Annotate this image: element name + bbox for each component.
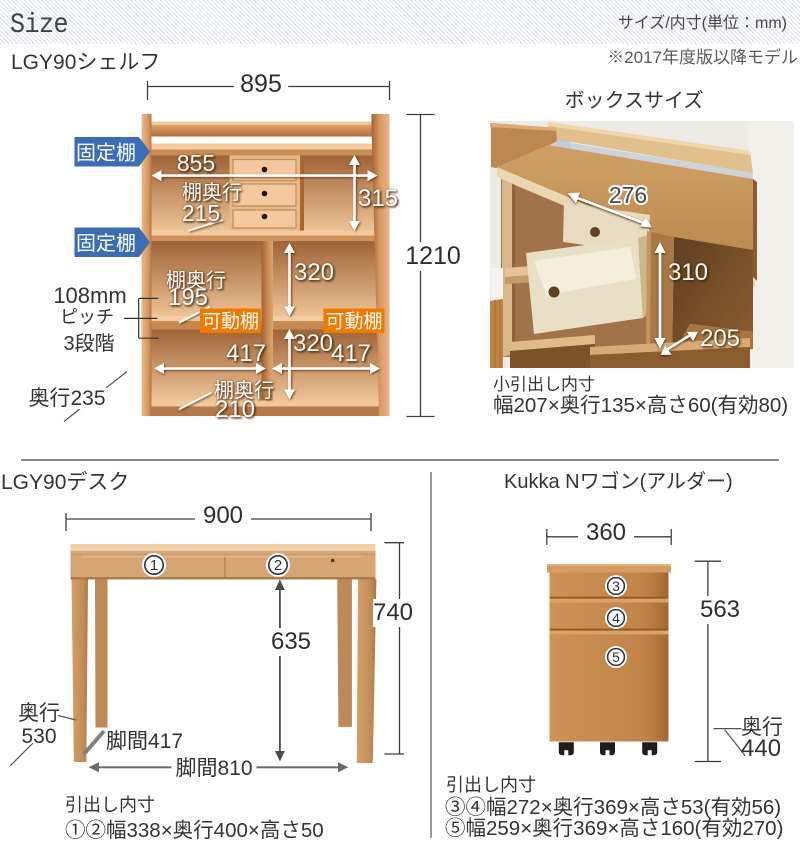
svg-text:可動棚: 可動棚 [325,311,382,333]
svg-text:固定棚: 固定棚 [76,232,136,255]
svg-text:固定棚: 固定棚 [76,142,136,165]
svg-text:可動棚: 可動棚 [202,311,259,333]
svg-text:2: 2 [274,557,282,574]
svg-text:4: 4 [612,610,620,626]
svg-text:3: 3 [612,578,620,594]
svg-text:1: 1 [150,557,158,574]
svg-text:5: 5 [612,649,620,665]
